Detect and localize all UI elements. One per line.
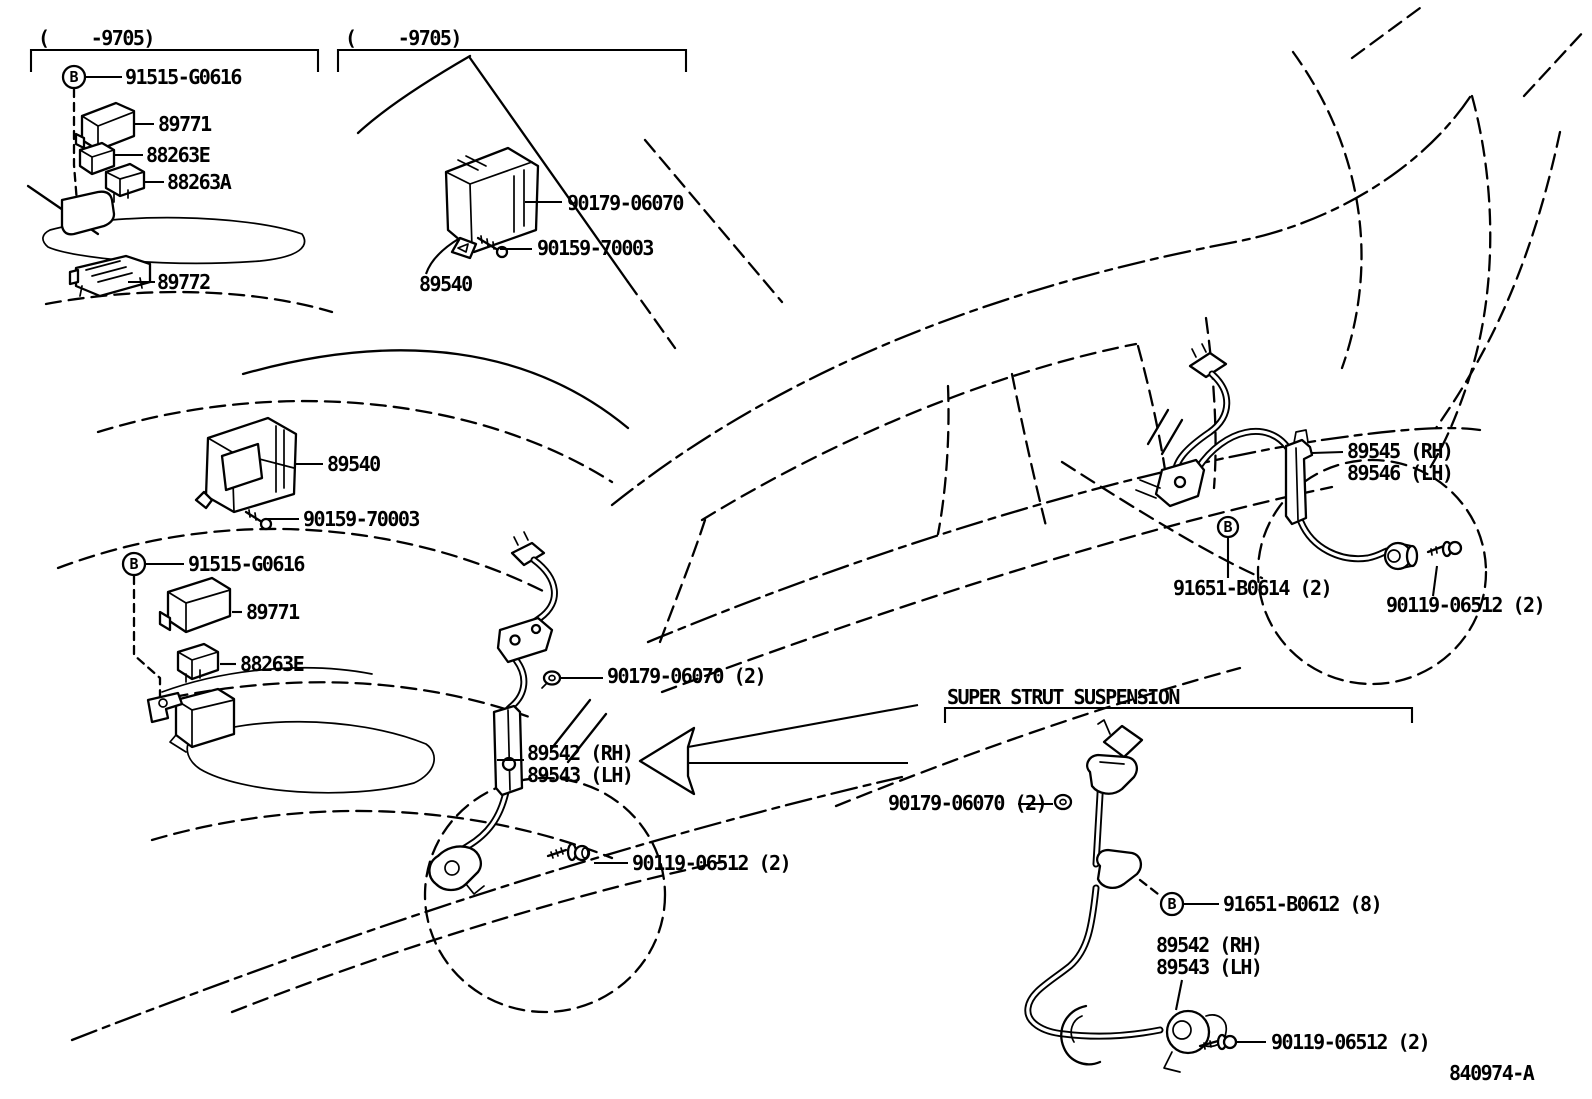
relay-cover: [62, 192, 114, 235]
part-number-90119-06512-sss[interactable]: 90119-06512 (2): [1271, 1030, 1429, 1054]
part-number-91651-B0614[interactable]: 91651-B0614 (2): [1173, 576, 1331, 600]
relay-89771: [168, 578, 230, 632]
relay-89771-early: [82, 103, 134, 150]
part-number-90159-70003-early[interactable]: 90159-70003: [537, 236, 653, 260]
part-number-88263E[interactable]: 88263E: [240, 652, 304, 676]
early-relay-assembly: B: [62, 66, 150, 296]
part-number-89543-sss[interactable]: 89543 (LH): [1156, 955, 1261, 979]
front-speed-sensor-assembly: [429, 532, 589, 894]
rear-sensor-body: [1286, 440, 1312, 524]
sss-clamp-lower: [1097, 850, 1141, 888]
b-symbol: B: [1223, 518, 1232, 536]
early-ecu-bracket: [338, 50, 686, 72]
abs-computer-assembly: B: [123, 418, 296, 752]
relay-88263A-early: [106, 164, 144, 196]
rear-sensor-head: [1385, 543, 1417, 569]
part-number-90119-06512-front[interactable]: 90119-06512 (2): [632, 851, 790, 875]
callout-labels: ( -9705) 91515-G0616 89771 88263E 88263A…: [38, 26, 1544, 1054]
screw-90159: [246, 512, 262, 522]
range-label-early-ecu: ( -9705): [345, 26, 461, 50]
part-number-91651-B0612[interactable]: 91651-B0612 (8): [1223, 892, 1381, 916]
parts-diagram-page: B B: [0, 0, 1592, 1099]
super-strut-heading: SUPER STRUT SUSPENSION: [947, 685, 1179, 709]
range-label-early-relays: ( -9705): [38, 26, 154, 50]
early-abs-computer-assembly: [446, 148, 538, 258]
rear-sensor-bolt: [1428, 542, 1461, 556]
b-symbol: B: [69, 68, 78, 86]
front-sensor-bolt: [548, 844, 589, 860]
b-symbol: B: [129, 555, 138, 573]
part-number-89772[interactable]: 89772: [157, 270, 210, 294]
front-grommet-screw: [542, 672, 560, 689]
arrow-head: [640, 728, 694, 794]
front-sensor-head: [429, 846, 480, 890]
part-number-91515-G0616[interactable]: 91515-G0616: [188, 552, 304, 576]
front-sensor-bracket: [498, 618, 552, 662]
super-strut-bracket: [945, 708, 1412, 723]
part-number-90159-70003[interactable]: 90159-70003: [303, 507, 419, 531]
sss-clamp-upper: [1087, 755, 1137, 794]
super-strut-sensor-assembly: B: [1028, 720, 1236, 1072]
sss-wire: [1028, 760, 1160, 1036]
relay-with-bracket: [176, 689, 234, 747]
relay-88263E-early: [80, 143, 114, 174]
sss-grommet-screw: [1055, 795, 1071, 809]
section-brackets: [31, 50, 1412, 723]
part-number-90179-06070-early[interactable]: 90179-06070: [567, 191, 683, 215]
part-number-89543-front[interactable]: 89543 (LH): [527, 763, 632, 787]
reference-arrow: [640, 705, 918, 794]
b-symbol: B: [1167, 895, 1176, 913]
part-number-89540-early[interactable]: 89540: [419, 272, 472, 296]
part-number-89545[interactable]: 89545 (RH): [1347, 439, 1452, 463]
relay-88263E: [178, 644, 218, 679]
part-number-90119-06512-rear[interactable]: 90119-06512 (2): [1386, 593, 1544, 617]
part-number-88263A[interactable]: 88263A: [167, 170, 232, 194]
part-number-89542-sss[interactable]: 89542 (RH): [1156, 933, 1261, 957]
part-number-90179-06070-sss[interactable]: 90179-06070 (2): [888, 791, 1046, 815]
drawing-number: 840974-A: [1449, 1061, 1535, 1085]
part-number-88263E-early[interactable]: 88263E: [146, 143, 210, 167]
abs-parts-diagram: B B: [0, 0, 1592, 1099]
part-number-89540[interactable]: 89540: [327, 452, 380, 476]
part-number-91515-G0616-early[interactable]: 91515-G0616: [125, 65, 241, 89]
sss-connector: [1104, 726, 1142, 757]
part-number-89546[interactable]: 89546 (LH): [1347, 461, 1452, 485]
car-body-outline: [58, 8, 1585, 1040]
part-number-89771-early[interactable]: 89771: [158, 112, 212, 136]
part-number-89542-front[interactable]: 89542 (RH): [527, 741, 632, 765]
part-number-89771[interactable]: 89771: [246, 600, 300, 624]
part-number-90179-06070-front[interactable]: 90179-06070 (2): [607, 664, 765, 688]
